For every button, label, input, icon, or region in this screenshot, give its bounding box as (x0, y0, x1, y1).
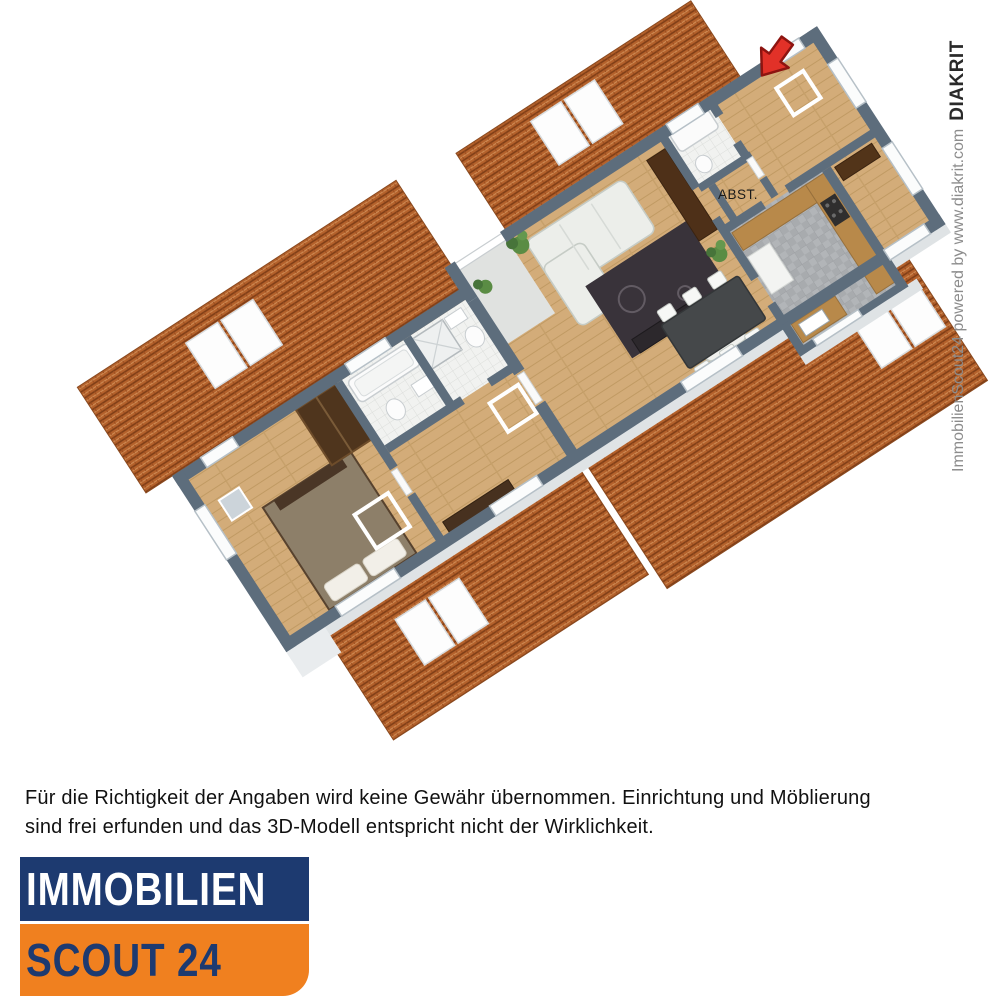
logo-text-scout24: SCOUT 24 (26, 933, 222, 987)
diakrit-watermark: ImmobilienScout24 powered by www.diakrit… (947, 22, 969, 472)
abst-label: ABST. (718, 187, 758, 202)
logo-band-scout24: SCOUT 24 (20, 924, 309, 996)
watermark-brand-text: DIAKRIT (947, 40, 968, 121)
logo-band-immobilien: IMMOBILIEN (20, 857, 309, 921)
disclaimer-line-2: sind frei erfunden und das 3D-Modell ent… (25, 813, 987, 842)
floorplan-3d-rendering: ABST. (0, 0, 1000, 778)
watermark-powered-text: ImmobilienScout24 powered by www.diakrit… (950, 129, 967, 472)
disclaimer-line-1: Für die Richtigkeit der Angaben wird kei… (25, 784, 987, 813)
disclaimer-text: Für die Richtigkeit der Angaben wird kei… (25, 784, 987, 842)
immobilienscout24-logo: IMMOBILIEN SCOUT 24 (20, 857, 309, 996)
logo-text-immobilien: IMMOBILIEN (26, 862, 266, 916)
